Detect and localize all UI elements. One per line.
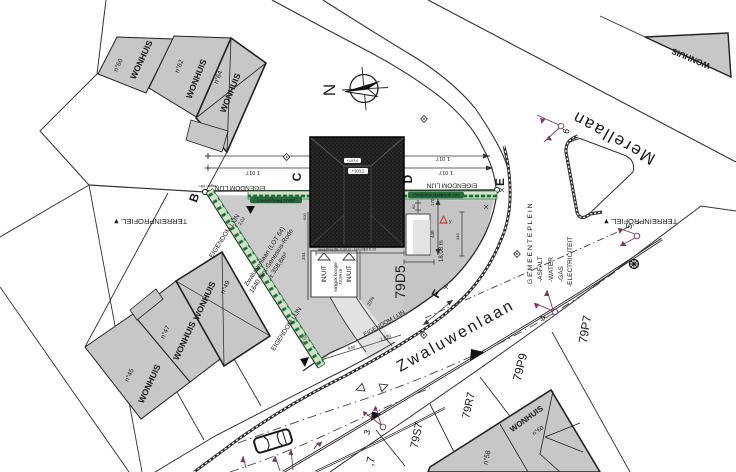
svg-text:600: 600 xyxy=(302,213,307,220)
svg-text:IN/UIT: IN/UIT xyxy=(322,265,328,283)
svg-text:440: 440 xyxy=(430,230,435,238)
svg-text:+103,2: +103,2 xyxy=(352,169,366,174)
svg-text:EIGENDOM LIJN: EIGENDOM LIJN xyxy=(426,182,477,189)
svg-text:1 017: 1 017 xyxy=(436,155,450,161)
svg-text:1 017: 1 017 xyxy=(439,169,453,175)
svg-text:344: 344 xyxy=(301,252,306,260)
svg-text:TERREINPROFIEL.▼: TERREINPROFIEL.▼ xyxy=(603,217,678,226)
svg-text:Onderhoudsstrook 1m: Onderhoudsstrook 1m xyxy=(413,193,459,198)
svg-text:73,99 m: 73,99 m xyxy=(338,269,343,286)
svg-text:1 017: 1 017 xyxy=(246,169,260,175)
svg-text:E: E xyxy=(493,178,507,186)
svg-text:N: N xyxy=(320,84,339,96)
svg-text:GEMEENTEPLEIN: GEMEENTEPLEIN xyxy=(527,202,534,285)
svg-text:170: 170 xyxy=(430,198,435,206)
svg-text:60: 60 xyxy=(411,204,416,209)
svg-text:TERREINPROFIEL.▼: TERREINPROFIEL.▼ xyxy=(113,217,188,226)
svg-text:IN/UIT: IN/UIT xyxy=(347,265,353,283)
svg-text:Laurierhaag 1m80: Laurierhaag 1m80 xyxy=(257,198,296,204)
svg-text:440: 440 xyxy=(455,233,460,240)
svg-text:-GAS: -GAS xyxy=(558,265,565,282)
svg-text:18,08 m: 18,08 m xyxy=(439,240,445,262)
svg-text:+107,6: +107,6 xyxy=(347,159,359,163)
svg-text:79D5: 79D5 xyxy=(392,265,408,299)
svg-text:-ELECTRICITEIT: -ELECTRICITEIT xyxy=(567,237,574,287)
svg-text:C: C xyxy=(290,172,304,181)
svg-text:hagen h8=: hagen h8= xyxy=(198,184,218,189)
svg-text:-WATER: -WATER xyxy=(548,257,555,282)
svg-text:EIGENDOM LIJN: EIGENDOM LIJN xyxy=(214,184,265,191)
svg-text:-ASFALT: -ASFALT xyxy=(537,256,544,282)
